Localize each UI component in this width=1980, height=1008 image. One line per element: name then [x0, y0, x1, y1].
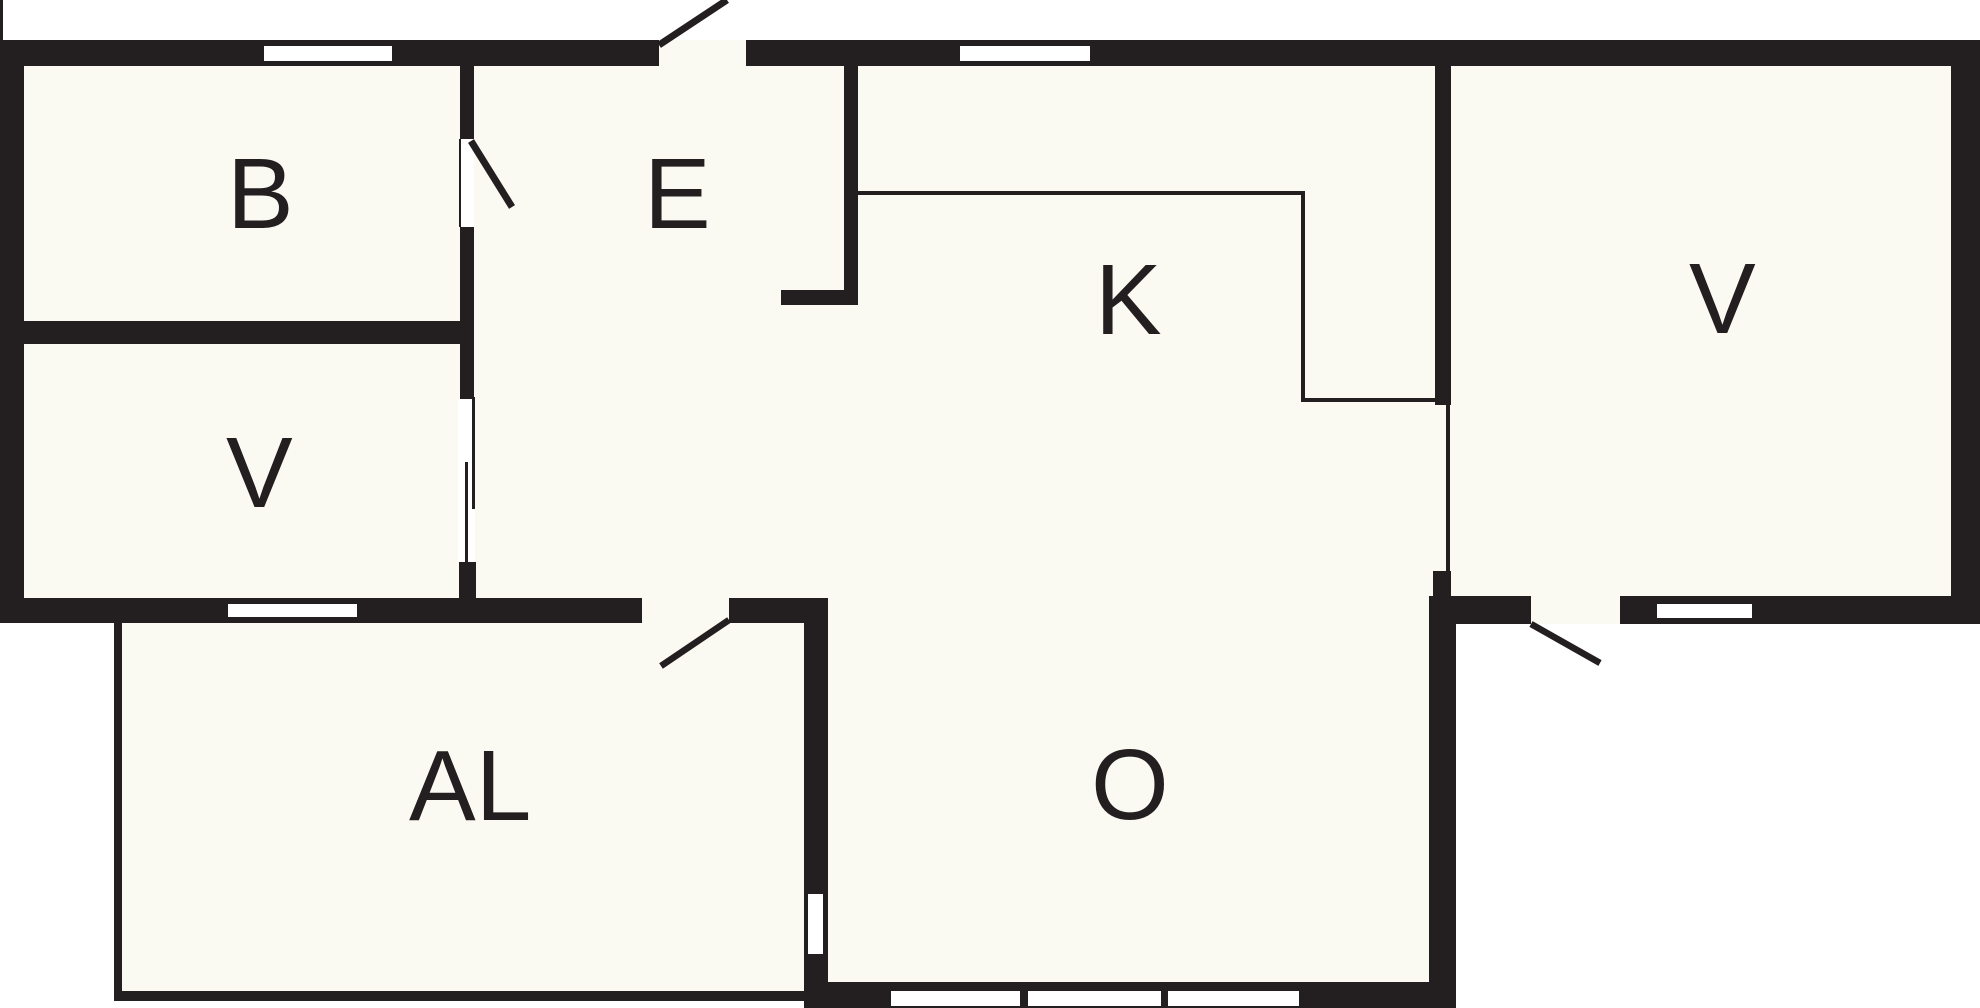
svg-text:V: V	[1689, 243, 1756, 355]
svg-text:AL: AL	[409, 730, 531, 842]
svg-text:O: O	[1091, 729, 1169, 841]
svg-text:B: B	[227, 138, 294, 250]
svg-text:V: V	[226, 417, 293, 529]
svg-text:E: E	[644, 138, 711, 250]
svg-text:K: K	[1095, 244, 1162, 356]
